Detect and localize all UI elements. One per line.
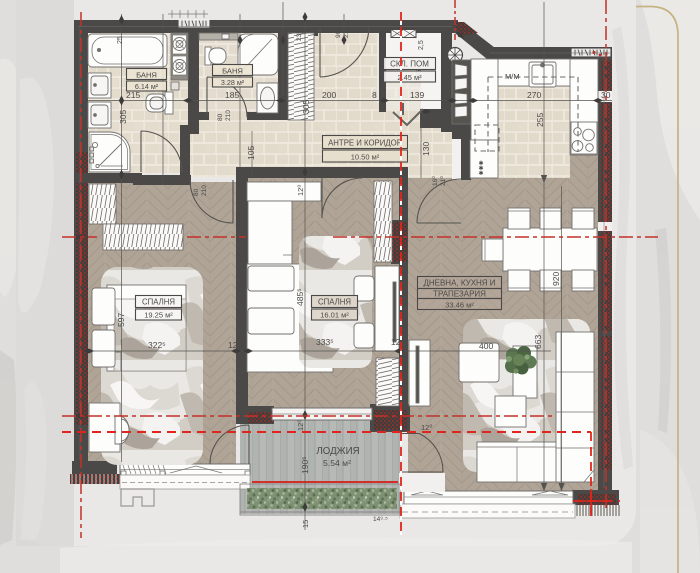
svg-text:16.01 м²: 16.01 м² [320, 311, 349, 320]
svg-text:ЛОДЖИЯ: ЛОДЖИЯ [316, 446, 359, 457]
svg-text:АНТРЕ И КОРИДОР: АНТРЕ И КОРИДОР [328, 139, 402, 148]
svg-text:14⁹·⁵: 14⁹·⁵ [373, 516, 388, 523]
svg-text:80: 80 [217, 113, 224, 121]
svg-text:255: 255 [535, 113, 545, 127]
svg-text:БАНЯ: БАНЯ [222, 67, 243, 76]
svg-text:12⁰: 12⁰ [296, 185, 305, 196]
svg-text:210: 210 [201, 185, 208, 196]
svg-text:200: 200 [322, 90, 336, 100]
svg-text:105: 105 [246, 146, 256, 160]
svg-text:16⁰: 16⁰ [431, 176, 439, 186]
svg-text:М/М: М/М [505, 72, 520, 81]
svg-text:✱: ✱ [478, 170, 483, 177]
svg-text:21⁰: 21⁰ [439, 176, 447, 186]
svg-text:190⁵: 190⁵ [300, 456, 310, 474]
svg-text:12: 12 [391, 337, 401, 347]
svg-text:БАНЯ: БАНЯ [136, 71, 157, 80]
svg-text:597: 597 [116, 313, 126, 327]
svg-text:210: 210 [225, 110, 232, 121]
svg-text:33.46 м²: 33.46 м² [445, 301, 474, 310]
svg-text:12: 12 [277, 90, 287, 100]
svg-text:2,5: 2,5 [418, 40, 425, 50]
svg-text:235: 235 [296, 30, 303, 41]
svg-text:185: 185 [225, 90, 239, 100]
svg-text:920: 920 [551, 272, 561, 286]
svg-text:305: 305 [118, 110, 128, 124]
svg-text:25: 25 [117, 36, 124, 44]
svg-text:12⁰: 12⁰ [296, 420, 305, 431]
svg-text:139: 139 [410, 90, 424, 100]
svg-text:663: 663 [533, 335, 543, 349]
svg-text:270: 270 [527, 90, 541, 100]
svg-text:СПАЛНЯ: СПАЛНЯ [318, 298, 351, 307]
svg-text:5.54 м²: 5.54 м² [323, 458, 351, 468]
svg-text:210: 210 [343, 27, 350, 38]
svg-text:400: 400 [479, 341, 493, 351]
svg-text:6.14 м²: 6.14 м² [135, 82, 159, 91]
svg-text:485⁵: 485⁵ [295, 288, 305, 306]
svg-text:8: 8 [424, 117, 431, 121]
svg-text:19.25 м²: 19.25 м² [144, 311, 173, 320]
svg-text:ДНЕВНА, КУХНЯ И: ДНЕВНА, КУХНЯ И [423, 279, 495, 288]
svg-text:210: 210 [333, 167, 340, 178]
svg-text:322⁵: 322⁵ [148, 340, 166, 350]
svg-text:90: 90 [335, 30, 342, 38]
svg-text:90: 90 [325, 170, 332, 178]
svg-text:10.50 м²: 10.50 м² [351, 153, 380, 162]
svg-text:305: 305 [301, 100, 311, 114]
svg-text:12⁰: 12⁰ [421, 423, 432, 432]
svg-text:12: 12 [228, 340, 238, 350]
svg-text:СКЛ. ПОМ: СКЛ. ПОМ [390, 60, 429, 69]
svg-text:130: 130 [421, 142, 431, 156]
svg-text:8: 8 [372, 90, 377, 100]
svg-text:80: 80 [193, 188, 200, 196]
svg-text:ТРАПЕЗАРИЯ: ТРАПЕЗАРИЯ [433, 290, 486, 299]
svg-text:12⁰: 12⁰ [237, 252, 245, 263]
svg-text:3.28 м²: 3.28 м² [221, 78, 245, 87]
svg-text:333⁵: 333⁵ [316, 337, 334, 347]
svg-text:15: 15 [301, 520, 310, 528]
svg-text:СПАЛНЯ: СПАЛНЯ [142, 298, 175, 307]
